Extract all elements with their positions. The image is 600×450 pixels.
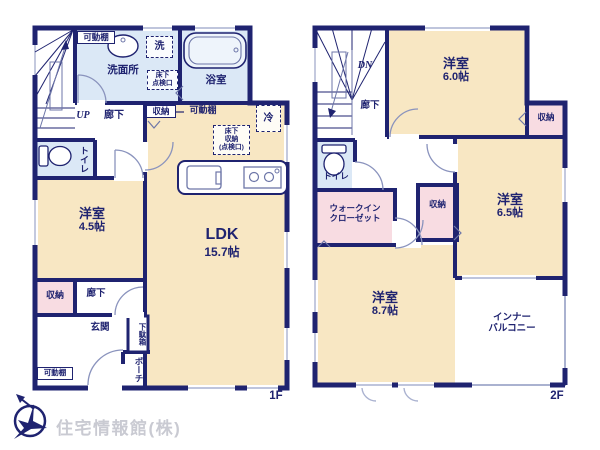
stairs-1f <box>35 30 75 128</box>
label-underfloor-hatch: 床下 点検口 <box>147 70 178 90</box>
label-storage-ldk: 収納 <box>146 105 176 118</box>
label-toilet-1f: トイレ <box>73 140 88 178</box>
label-toilet-2f: トイレ <box>317 171 355 181</box>
label-youshitsu-87: 洋室 8.7帖 <box>346 290 424 318</box>
label-bathroom: 浴室 <box>186 74 246 86</box>
kitchen-counter <box>178 161 287 194</box>
label-shelf-ldk: 可動棚 <box>183 105 223 116</box>
label-ldk: LDK 15.7帖 <box>182 226 262 259</box>
label-stairs-down: DN <box>352 60 378 72</box>
stairs-2f <box>315 28 385 135</box>
label-fridge: 冷 <box>256 105 281 132</box>
label-closet-2f-right: 収納 <box>528 112 564 122</box>
label-underfloor-storage: 床下 収納 (点検口) <box>213 125 250 155</box>
label-inner-balcony: インナー バルコニー <box>478 312 546 334</box>
label-closet-1f: 収納 <box>38 290 72 301</box>
label-hallway-1f: 廊下 <box>94 110 134 122</box>
room-closet-2f-mid <box>418 185 457 240</box>
label-shelf-bottom: 可動棚 <box>37 367 73 380</box>
label-youshitsu-45: 洋室 4.5帖 <box>60 206 124 234</box>
bathtub <box>184 33 246 68</box>
label-hallway-2f: 廊下 <box>350 100 390 111</box>
label-hallway-lower: 廊下 <box>76 288 116 299</box>
label-washroom: 洗面所 <box>98 64 148 76</box>
company-name: 住宅情報館(株) <box>56 414 181 439</box>
label-porch: ポーチ <box>128 353 143 387</box>
label-shoe-cabinet: 下駄箱 <box>130 317 146 351</box>
label-youshitsu-65: 洋室 6.5帖 <box>476 192 544 220</box>
floorplan-canvas: 可動棚 洗 洗面所 床下 点検口 浴室 UP 廊下 トイレ 洋室 4.5帖 収納… <box>0 0 600 450</box>
label-washer: 洗 <box>146 36 173 58</box>
label-youshitsu-60: 洋室 6.0帖 <box>412 56 500 84</box>
compass-logo <box>14 394 47 439</box>
label-stairs-up: UP <box>70 110 96 122</box>
floor2-label: 2F <box>540 390 574 404</box>
label-shelf-top: 可動棚 <box>77 31 115 44</box>
floor1-label: 1F <box>258 390 294 404</box>
label-walkin-closet: ウォークイン クローゼット <box>317 203 393 223</box>
label-entrance: 玄関 <box>78 322 122 333</box>
label-closet-2f-mid: 収納 <box>421 199 454 209</box>
toilet-fixture-1f <box>39 146 71 166</box>
